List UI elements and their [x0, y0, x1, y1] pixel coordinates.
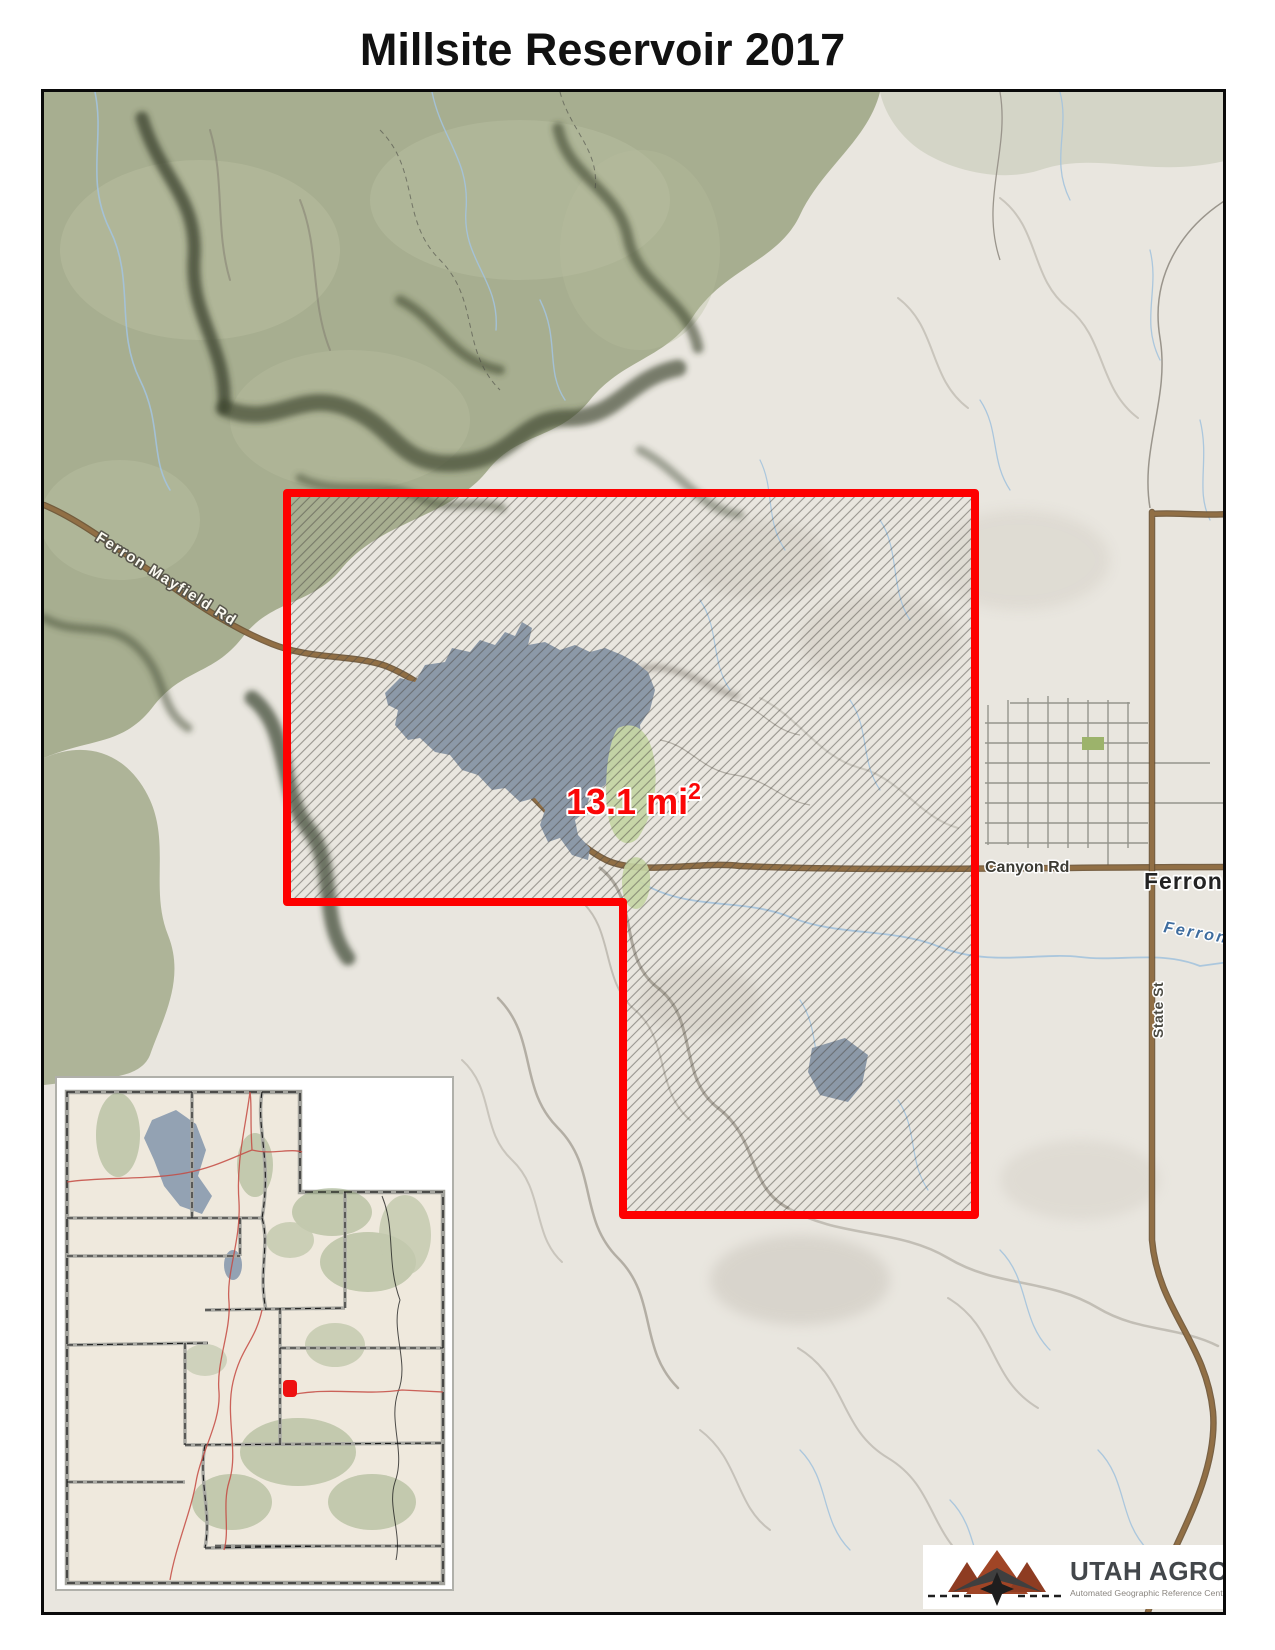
- ferron-town-label: Ferron: [1144, 868, 1223, 894]
- agrc-logo: UTAH AGRC Automated Geographic Reference…: [923, 1545, 1223, 1609]
- logo-subtitle: Automated Geographic Reference Center: [1070, 1588, 1223, 1598]
- town-park-patch: [1082, 737, 1104, 750]
- map-canvas: Ferron Mayfield Rd Canyon Rd Ferron Ferr…: [44, 92, 1223, 1612]
- canyon-road-label: Canyon Rd: [985, 859, 1069, 876]
- map-page: { "title": "Millsite Reservoir 2017", "m…: [0, 0, 1275, 1650]
- state-street-label: State St: [1150, 982, 1166, 1038]
- map-frame: Ferron Mayfield Rd Canyon Rd Ferron Ferr…: [41, 89, 1226, 1615]
- location-marker-dot: [283, 1380, 297, 1397]
- page-title: Millsite Reservoir 2017: [0, 24, 1205, 76]
- area-measurement-label: 13.1 mi2: [566, 778, 701, 822]
- logo-title: UTAH AGRC: [1070, 1556, 1223, 1586]
- inset-map: [56, 1077, 453, 1590]
